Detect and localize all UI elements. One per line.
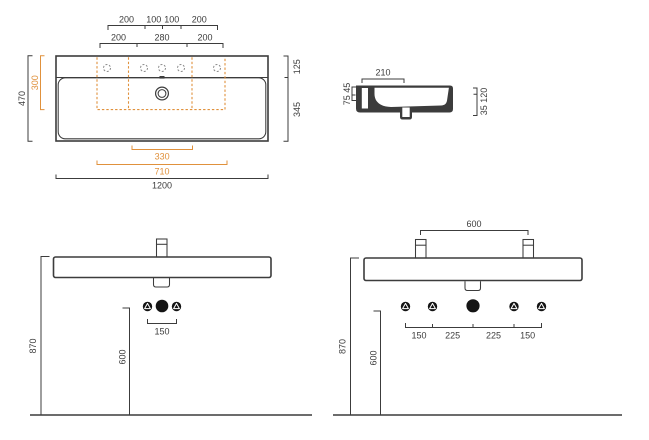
- dim-tapzone-width: 710: [154, 167, 169, 177]
- dim-tapzone-depth-bracket: [41, 56, 45, 110]
- front-view-double: 870 600 600 150 225 225 150: [333, 219, 622, 415]
- dim-section-right: 35 120: [479, 88, 489, 116]
- dim-section-left: 75 45: [342, 83, 352, 106]
- dim-section-left-bracket: [352, 87, 356, 101]
- dim-span-c: 225: [486, 331, 501, 341]
- dim-ledge-depth: 210: [375, 68, 390, 78]
- waste-outlet-icon: [466, 299, 479, 312]
- dim-depth-total: 470: [17, 91, 27, 106]
- dim-bowl-depth: 345: [292, 102, 302, 117]
- dim-tap-distance: 600: [466, 219, 481, 229]
- dim-row1-d: 200: [192, 15, 207, 25]
- faucet-right: [523, 240, 534, 259]
- basin-front-2: [364, 258, 582, 281]
- dim-back-ledge: 125: [292, 59, 302, 74]
- overflow-mark: [160, 76, 165, 79]
- dim-row1-bracket: [108, 26, 218, 30]
- dim-right-bracket: [284, 56, 288, 141]
- plan-view: 200 100 100 200 200 280 200 470 300 125 …: [17, 15, 302, 191]
- dim-rim-height-bracket-1: [41, 257, 49, 416]
- dim-rim-height-bracket-2: [351, 258, 359, 415]
- dim-supply-height-1: 600: [118, 349, 128, 364]
- dim-tap-distance-bracket: [421, 231, 529, 235]
- faucet-left: [416, 240, 427, 259]
- dim-row2-b: 280: [154, 33, 169, 43]
- dim-width-total: 1200: [152, 181, 172, 191]
- dim-tapzone-width-bracket: [97, 161, 227, 165]
- dim-span-b: 225: [445, 331, 460, 341]
- dim-connection-span-bracket: [148, 320, 177, 324]
- dim-depth-bracket: [28, 56, 32, 142]
- section-drain-hole: [402, 108, 409, 118]
- dim-siphon-bracket: [132, 146, 193, 150]
- drain-trap-1: [154, 278, 170, 288]
- dim-section-right-bracket: [474, 88, 478, 116]
- section-tap-hole: [362, 88, 368, 109]
- plan-outline: [56, 56, 268, 141]
- dim-row2-bracket: [100, 44, 223, 48]
- washbasin-technical-drawing: 200 100 100 200 200 280 200 470 300 125 …: [0, 0, 649, 440]
- basin-front-1: [54, 257, 272, 278]
- dim-row1-a: 200: [119, 15, 134, 25]
- dim-connection-spans-bracket: [406, 324, 542, 328]
- dim-rim-height-2: 870: [338, 339, 348, 354]
- dim-row2-a: 200: [111, 33, 126, 43]
- dim-supply-height-2: 600: [369, 350, 379, 365]
- dim-tapzone-depth: 300: [30, 75, 40, 90]
- front-view-single: 870 150 600: [28, 239, 312, 415]
- section-bowl-interior: [375, 88, 449, 107]
- dim-rim-height-1: 870: [28, 338, 38, 353]
- drain-trap-2: [465, 282, 481, 291]
- dim-row1-c: 100: [164, 15, 179, 25]
- side-section-view: 210 75 45 35 120: [342, 68, 489, 120]
- waste-outlet-icon: [156, 300, 169, 313]
- faucet-single: [157, 239, 168, 257]
- dim-span-d: 150: [520, 331, 535, 341]
- dim-ledge-bracket: [362, 79, 404, 83]
- dim-siphon-width: 330: [155, 152, 170, 162]
- dim-span-a: 150: [411, 331, 426, 341]
- dim-row1-b: 100: [146, 15, 161, 25]
- dim-connection-span: 150: [154, 327, 169, 337]
- dim-row2-c: 200: [197, 33, 212, 43]
- drawing-svg: 200 100 100 200 200 280 200 470 300 125 …: [0, 0, 649, 440]
